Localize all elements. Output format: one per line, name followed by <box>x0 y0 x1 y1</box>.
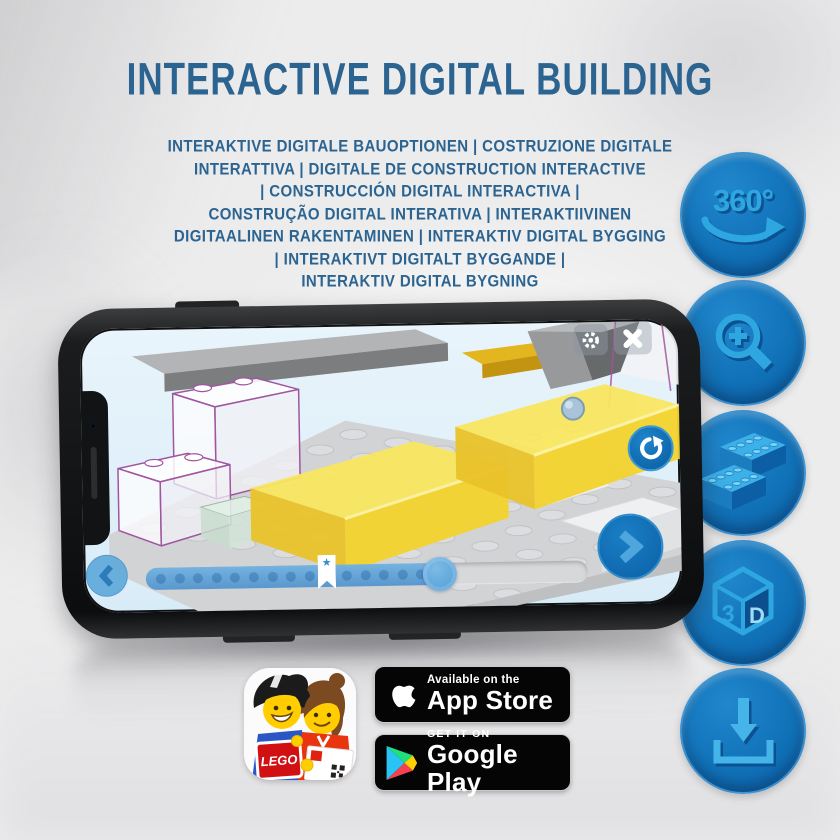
blue-ball-piece <box>562 397 584 419</box>
360-rotation-icon: 360° 360° <box>693 165 793 265</box>
svg-text:LEGO: LEGO <box>260 752 298 770</box>
app-screen: ★ <box>80 319 683 613</box>
progress-step-dot <box>342 571 352 581</box>
progress-step-dot <box>286 572 296 582</box>
promo-page: INTERACTIVE DIGITAL BUILDING INTERAKTIVE… <box>0 0 840 840</box>
progress-step-dot <box>249 572 259 582</box>
subtitle-line: DIGITAALINEN RAKENTAMINEN | INTERAKTIV D… <box>70 226 770 249</box>
download-icon <box>700 688 786 774</box>
chevron-left-icon <box>99 564 115 588</box>
subtitle-line: | CONSTRUCCIÓN DIGITAL INTERACTIVA | <box>70 181 770 204</box>
boy-hand <box>292 736 303 747</box>
svg-text:D: D <box>749 603 765 628</box>
progress-step-dot <box>379 570 389 580</box>
badge-store-name: Google Play <box>427 741 570 796</box>
subtitle-line: INTERAKTIV DIGITAL BYGNING <box>70 271 770 294</box>
svg-text:360°: 360° <box>713 183 774 218</box>
progress-step-dot <box>193 573 203 583</box>
progress-step-dot <box>360 570 370 580</box>
feature-360-button[interactable]: 360° 360° <box>680 152 806 278</box>
progress-step-dot <box>397 570 407 580</box>
gear-icon <box>580 329 602 351</box>
progress-step-dot <box>174 573 184 583</box>
progress-step-dot <box>212 573 222 583</box>
settings-button[interactable] <box>574 324 609 356</box>
progress-dots <box>156 563 427 590</box>
badge-store-name: App Store <box>427 687 553 714</box>
progress-step-dot <box>267 572 277 582</box>
subtitle-line: INTERATTIVA | DIGITALE DE CONSTRUCTION I… <box>70 159 770 182</box>
app-store-badge[interactable]: Available on the App Store <box>374 666 571 723</box>
subtitle-line: | INTERAKTIVT DIGITALT BYGGANDE | <box>70 249 770 272</box>
phone-notch <box>81 391 111 545</box>
lego-app-icon[interactable]: LEGO <box>244 668 356 780</box>
chevron-right-icon <box>617 529 644 563</box>
progress-step-dot <box>156 574 166 584</box>
page-title: INTERACTIVE DIGITAL BUILDING <box>0 54 840 106</box>
close-button[interactable] <box>613 321 652 355</box>
earpiece-speaker <box>91 447 98 499</box>
subtitle-line: INTERAKTIVE DIGITALE BAUOPTIONEN | COSTR… <box>70 136 770 159</box>
feature-download-button[interactable] <box>680 668 806 794</box>
google-play-badge[interactable]: GET IT ON Google Play <box>374 734 571 791</box>
back-gray-beam <box>132 329 449 393</box>
subtitle-line: CONSTRUÇÃO DIGITAL INTERATIVA | INTERAKT… <box>70 204 770 227</box>
lego-app-artwork: LEGO <box>244 668 356 780</box>
google-play-icon <box>375 744 427 782</box>
apple-icon <box>375 674 427 716</box>
progress-step-dot <box>230 572 240 582</box>
subtitle: INTERAKTIVE DIGITALE BAUOPTIONEN | COSTR… <box>70 136 770 294</box>
progress-step-dot <box>305 571 315 581</box>
svg-text:3: 3 <box>719 600 737 629</box>
rotate-icon <box>637 435 663 461</box>
girl-hand <box>301 759 313 771</box>
smartphone-mockup: ★ <box>57 298 705 639</box>
zoom-in-icon <box>700 300 786 386</box>
3d-cube-icon: 3 D <box>700 560 786 646</box>
lego-bricks-icon <box>698 428 788 518</box>
front-camera <box>90 423 96 429</box>
